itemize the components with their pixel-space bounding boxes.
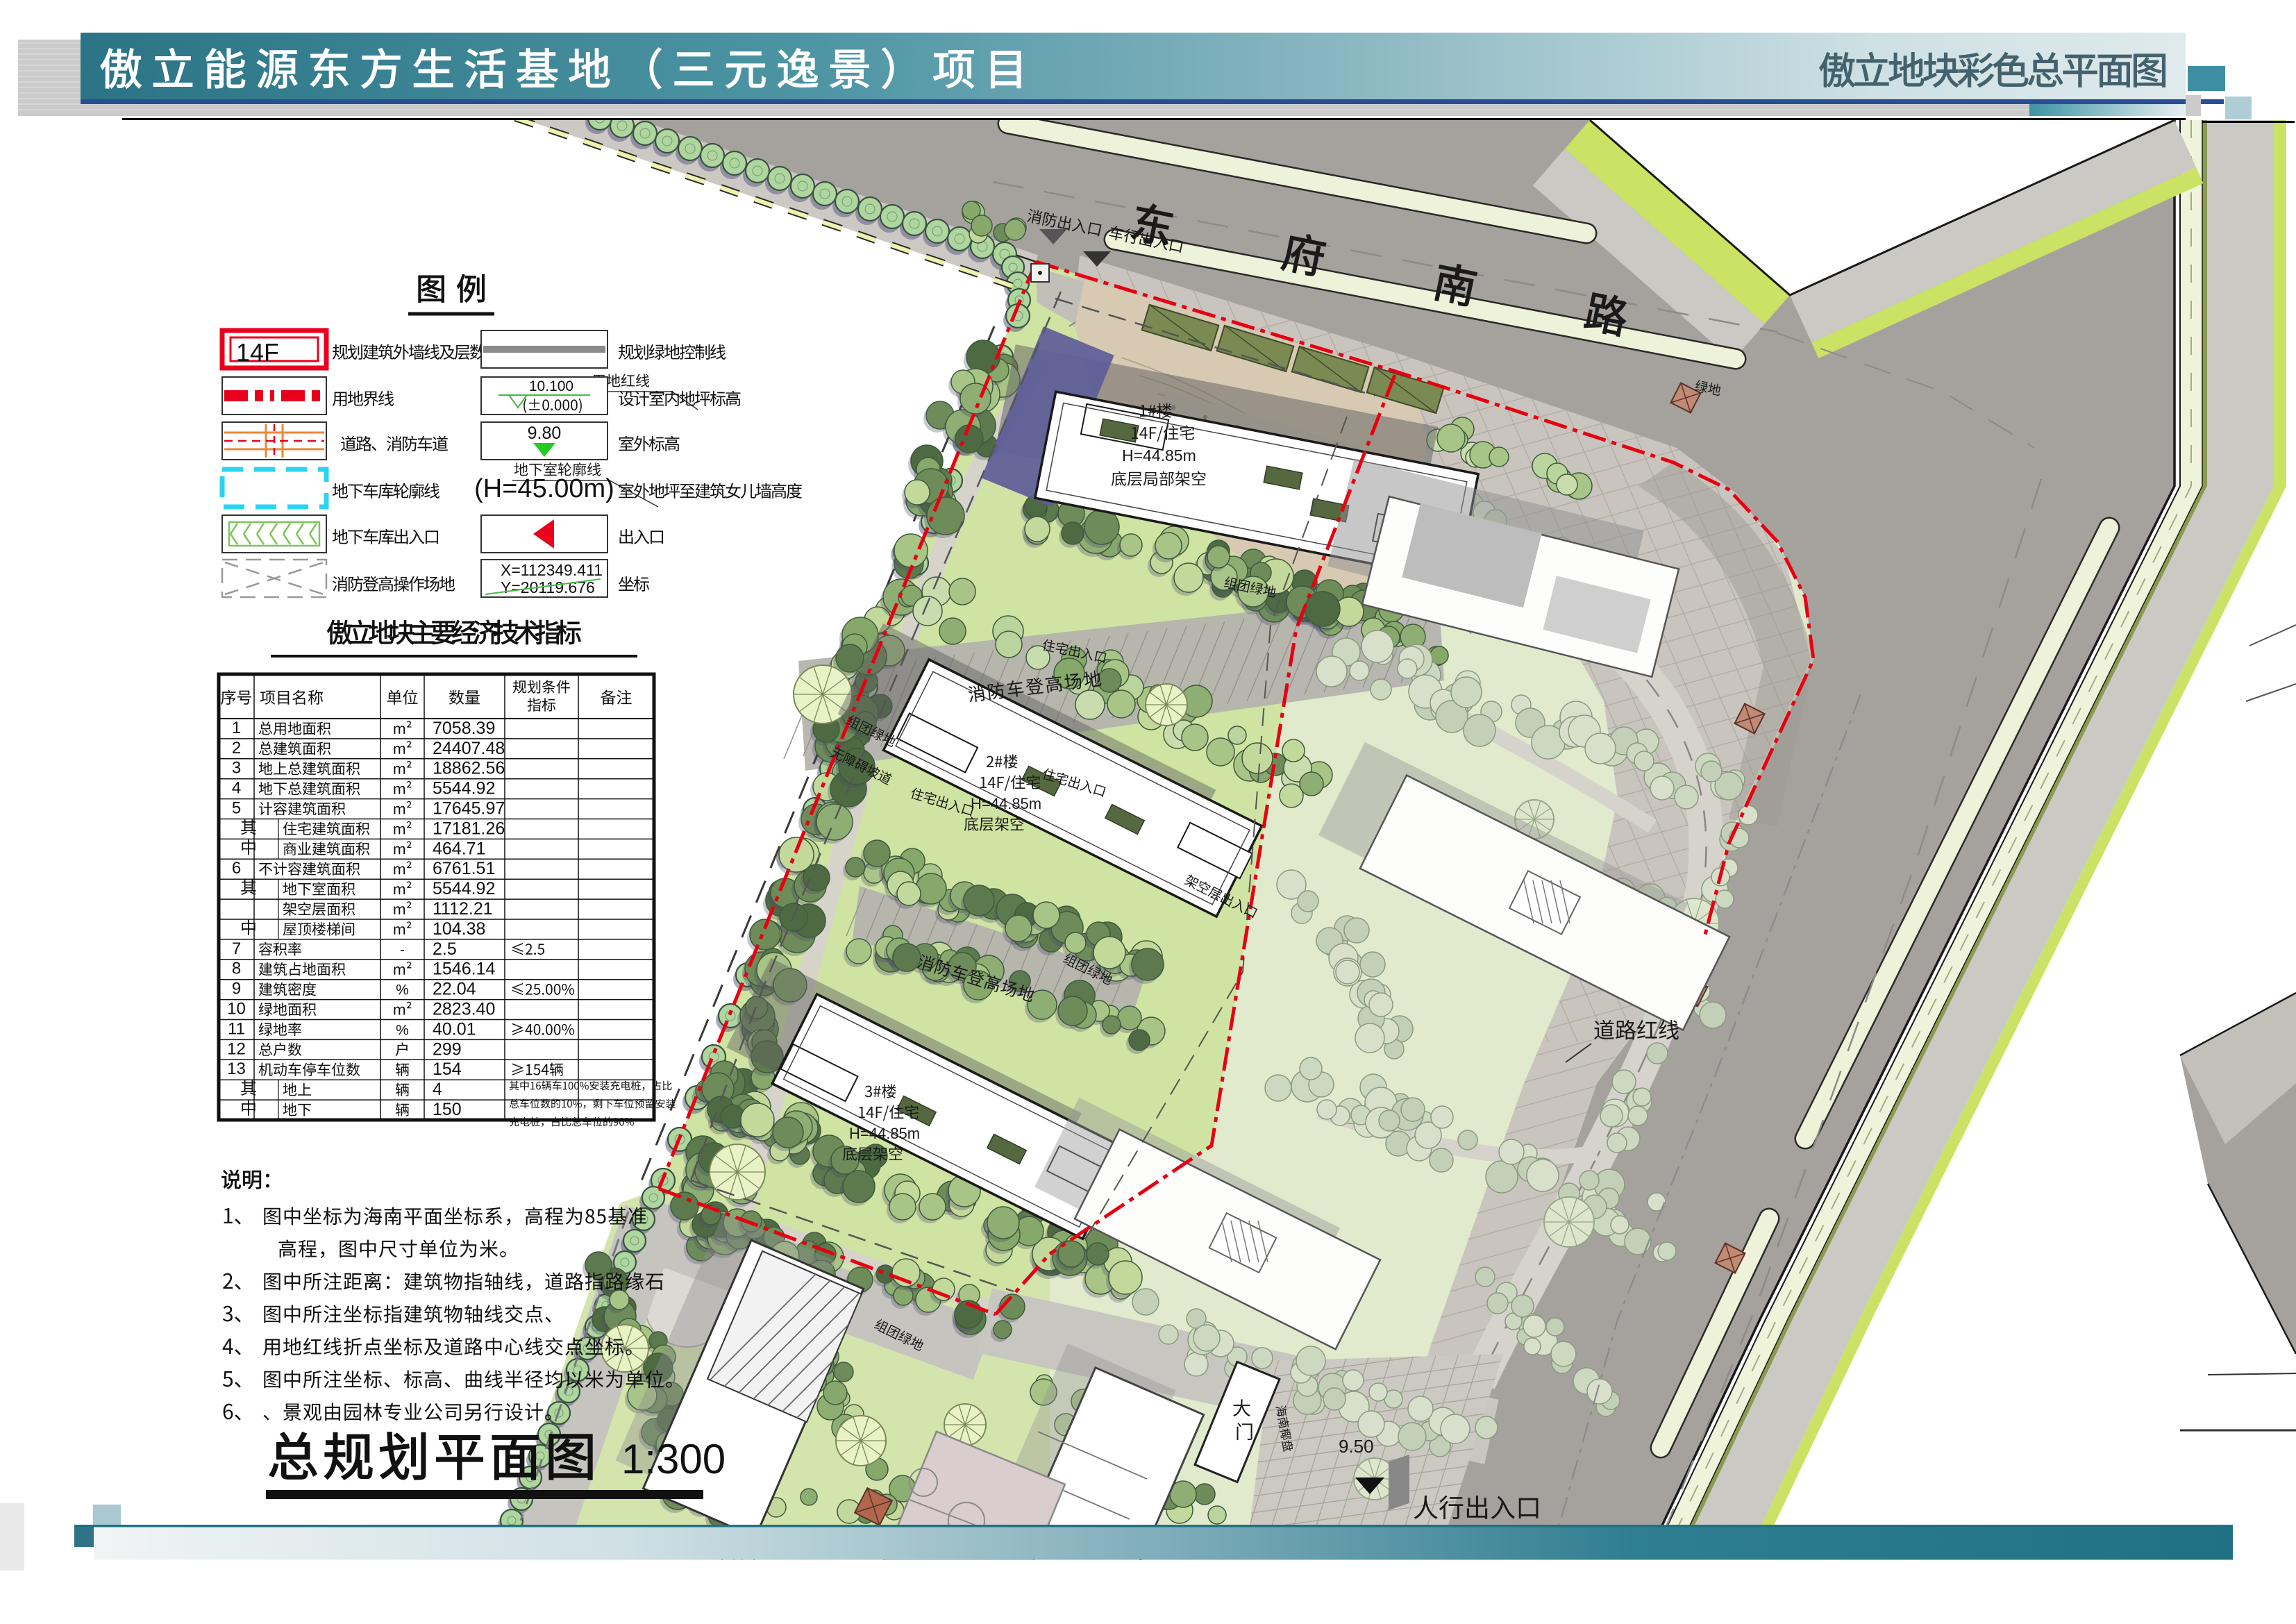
svg-text:5544.92: 5544.92: [433, 879, 495, 898]
svg-text:%: %: [396, 982, 409, 998]
svg-text:6761.51: 6761.51: [433, 859, 495, 878]
svg-text:1: 1: [232, 719, 241, 737]
svg-text:2823.40: 2823.40: [433, 1000, 495, 1019]
svg-text:299: 299: [433, 1039, 462, 1059]
svg-text:6: 6: [232, 859, 241, 878]
svg-text:8: 8: [232, 960, 241, 978]
svg-text:22.04: 22.04: [433, 980, 476, 999]
svg-text:3: 3: [232, 759, 241, 778]
svg-text:1546.14: 1546.14: [433, 960, 495, 979]
svg-text:104.38: 104.38: [433, 919, 485, 939]
svg-text:2.5: 2.5: [433, 939, 457, 959]
svg-text:7058.39: 7058.39: [433, 719, 495, 738]
svg-text:1112.21: 1112.21: [433, 899, 493, 919]
svg-text:9.50: 9.50: [1339, 1436, 1374, 1457]
svg-text:-: -: [400, 942, 405, 958]
svg-text:18862.56: 18862.56: [433, 759, 505, 778]
svg-text:H=44.85m: H=44.85m: [849, 1125, 920, 1142]
svg-text:154: 154: [433, 1060, 462, 1079]
svg-text:2: 2: [232, 739, 241, 757]
svg-text:17181.26: 17181.26: [433, 819, 505, 838]
svg-text:9.80: 9.80: [528, 424, 562, 443]
svg-text:4: 4: [232, 779, 241, 798]
svg-text:13: 13: [227, 1060, 246, 1078]
svg-text:5544.92: 5544.92: [433, 779, 495, 798]
svg-text:X=112349.411: X=112349.411: [501, 561, 603, 579]
svg-text:10.100: 10.100: [529, 378, 573, 394]
svg-text:10: 10: [227, 1000, 246, 1019]
svg-text:14F: 14F: [236, 338, 279, 367]
svg-text:(H=45.00m): (H=45.00m): [474, 474, 614, 503]
svg-text:17645.97: 17645.97: [433, 799, 505, 819]
svg-text:5: 5: [232, 799, 241, 818]
svg-text:24407.48: 24407.48: [433, 739, 505, 758]
svg-text:1:300: 1:300: [621, 1436, 726, 1482]
svg-text:%: %: [396, 1022, 409, 1038]
svg-text:4: 4: [433, 1080, 442, 1099]
svg-text:9: 9: [232, 980, 241, 998]
svg-text:H=44.85m: H=44.85m: [1122, 446, 1196, 464]
svg-text:11: 11: [228, 1019, 245, 1038]
svg-text:12: 12: [227, 1039, 246, 1058]
svg-text:7: 7: [232, 939, 241, 958]
svg-text:464.71: 464.71: [433, 839, 485, 858]
svg-text:H=44.85m: H=44.85m: [971, 795, 1041, 812]
svg-text:150: 150: [433, 1100, 462, 1119]
svg-text:40.01: 40.01: [433, 1019, 476, 1039]
